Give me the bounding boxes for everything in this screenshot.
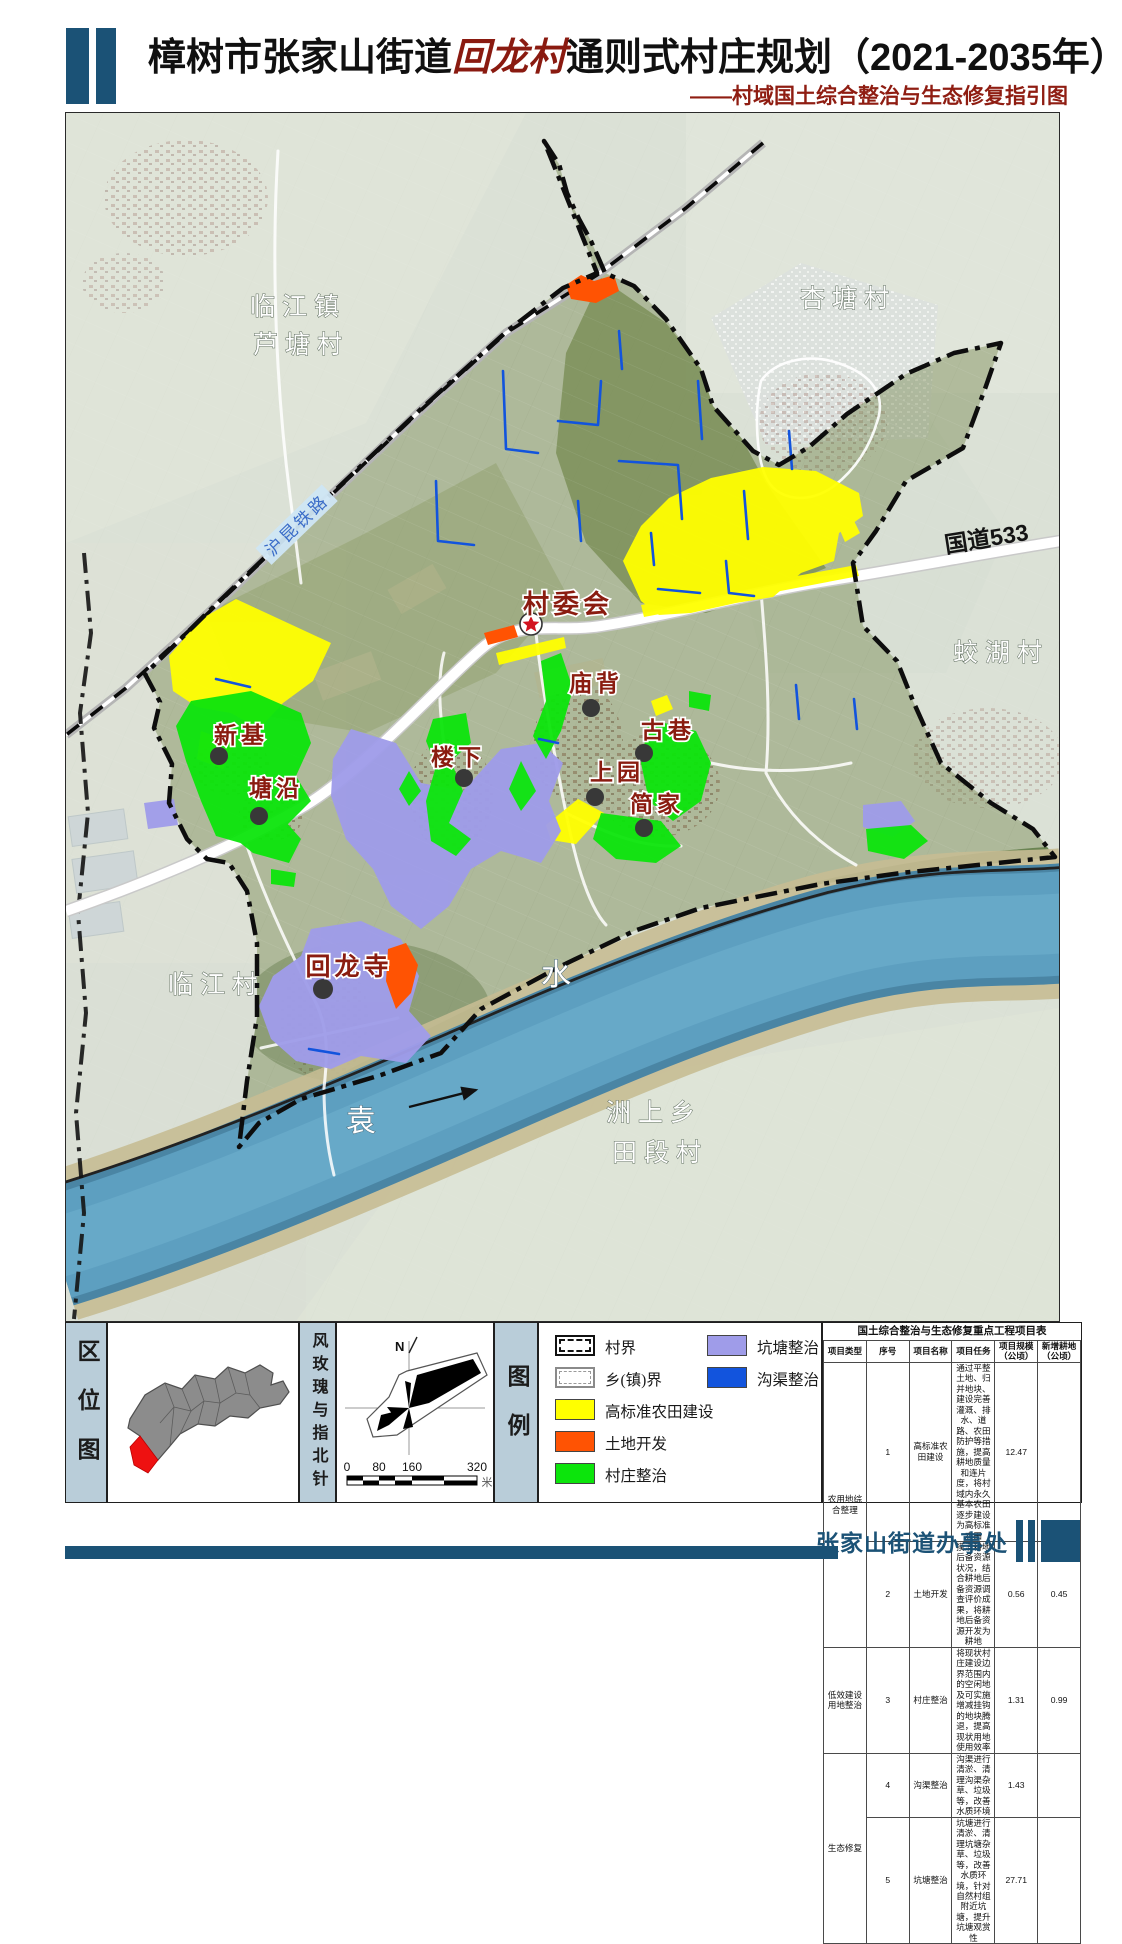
legend-title: 图例: [499, 1364, 533, 1462]
svg-text:0: 0: [344, 1460, 351, 1474]
location-map-panel: [107, 1322, 299, 1503]
village-renovation-swatch: [555, 1463, 595, 1484]
north-label: N: [395, 1339, 404, 1354]
farmland-swatch: [555, 1399, 595, 1420]
title-suffix: 通则式村庄规划（2021-2035年）: [566, 37, 1122, 79]
project-table-panel: 国土综合整治与生态修复重点工程项目表 项目类型 序号 项目名称 项目任务 项目规…: [822, 1322, 1082, 1503]
place-label-lutangcun: 芦塘村: [253, 331, 349, 359]
scale-unit: 米: [482, 1476, 493, 1489]
scale-bar: 0 80 160 320 米: [344, 1460, 492, 1489]
township-boundary-swatch: [555, 1367, 595, 1388]
hamlet-label-guxiang: 古巷: [641, 717, 695, 743]
page-subtitle: ——村域国土综合整治与生态修复指引图: [0, 80, 1068, 110]
legend-title-column: 图例: [494, 1322, 538, 1503]
ditch-swatch: [707, 1367, 747, 1388]
svg-text:320: 320: [467, 1460, 487, 1474]
location-map-title: 区位图: [69, 1339, 103, 1486]
place-label-linjiangzhen: 临江镇: [250, 293, 346, 321]
pond-swatch: [707, 1335, 747, 1356]
footer-bar-square: [1041, 1520, 1080, 1562]
table-row: 生态修复 4 沟渠整治 沟渠进行清淤、清理沟渠杂草、垃圾等，改善水质环境 1.4…: [824, 1753, 1081, 1817]
hamlet-label-miaobei: 庙背: [569, 670, 623, 696]
hamlet-label-louxia: 楼下: [431, 744, 485, 770]
river-label-yuan: 袁: [346, 1105, 376, 1138]
footer-bar-thin-2: [1028, 1520, 1035, 1562]
page-title: 樟树市张家山街道回龙村通则式村庄规划（2021-2035年）: [148, 26, 1088, 81]
windrose-title-column: 风玫瑰与指北针: [299, 1322, 336, 1503]
place-label-xingtangcun: 杏塘村: [800, 285, 896, 313]
village-boundary-swatch: [555, 1335, 595, 1356]
location-map-title-column: 区位图: [65, 1322, 107, 1503]
planning-map: 沪昆铁路 国道533 临江镇 芦塘村 杏塘村 蛟湖村 临江村 洲上乡 田段村 袁…: [65, 112, 1060, 1322]
hamlet-label-huilongsi: 回龙寺: [305, 952, 392, 981]
city-outline: [128, 1365, 289, 1473]
place-label-zhoushangxiang: 洲上乡: [606, 1099, 702, 1127]
river-label-shui: 水: [541, 959, 571, 992]
place-label-tianduancun: 田段村: [612, 1139, 708, 1167]
svg-text:160: 160: [402, 1460, 422, 1474]
hamlet-label-shangyuan: 上园: [590, 759, 644, 785]
title-prefix: 樟树市张家山街道: [148, 37, 452, 79]
table-row: 低效建设用地整治 3 村庄整治 将现状村庄建设边界范围内的空闲地及可实施增减挂钩…: [824, 1647, 1081, 1753]
title-village-name: 回龙村: [452, 37, 566, 79]
hamlet-label-tangyan: 塘沿: [249, 775, 303, 801]
windrose-title: 风玫瑰与指北针: [306, 1332, 330, 1493]
svg-text:80: 80: [372, 1460, 386, 1474]
table-title: 国土综合整治与生态修复重点工程项目表: [824, 1323, 1081, 1340]
windrose-panel: N 0 80 160 320 米: [336, 1322, 494, 1503]
project-table: 国土综合整治与生态修复重点工程项目表 项目类型 序号 项目名称 项目任务 项目规…: [823, 1323, 1081, 1944]
hamlet-label-cunweihui: 村委会: [523, 589, 613, 619]
wind-rose: [367, 1353, 487, 1437]
footer-bar-thin-1: [1016, 1520, 1023, 1562]
hamlet-label-jianjia: 简家: [630, 791, 684, 817]
land-dev-swatch: [555, 1431, 595, 1452]
footer-organization: 张家山街道办事处: [808, 1524, 1008, 1558]
table-row: 农用地综合整理 1 高标准农田建设 通过平整土地、归并地块、建设完善灌溉、排水、…: [824, 1362, 1081, 1541]
place-label-jiaohucun: 蛟湖村: [953, 639, 1049, 667]
footer-accent-bar: [65, 1546, 838, 1559]
table-header-row: 项目类型 序号 项目名称 项目任务 项目规模（公顷） 新增耕地（公顷）: [824, 1340, 1081, 1362]
legend-panel: 村界 乡(镇)界 高标准农田建设 土地开发 村庄整治 坑塘整治 沟渠整治: [538, 1322, 822, 1503]
place-label-linjiangcun: 临江村: [168, 971, 264, 999]
hamlet-label-xinji: 新基: [214, 722, 268, 748]
